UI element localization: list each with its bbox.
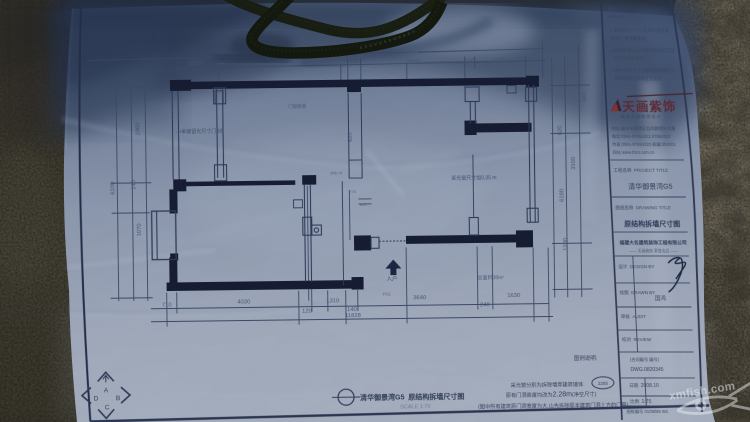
svg-text:—— 天画装饰 荣誉出品 ——: —— 天画装饰 荣誉出品 —— <box>629 248 678 253</box>
svg-text:1030: 1030 <box>688 41 701 47</box>
svg-text:120: 120 <box>302 309 312 315</box>
svg-text:6180: 6180 <box>559 189 565 202</box>
svg-text:工程名称 PROJECT TITLE: 工程名称 PROJECT TITLE <box>613 167 668 174</box>
svg-text:820: 820 <box>558 125 564 135</box>
svg-text:绘图 DRAWN BY: 绘图 DRAWN BY <box>619 289 655 296</box>
svg-text:2980: 2980 <box>135 122 141 135</box>
svg-text:4030: 4030 <box>237 299 250 305</box>
svg-text:710: 710 <box>162 302 172 308</box>
svg-text:2.拆墙前请与设计师现场核实无误: 2.拆墙前请与设计师现场核实无误 <box>610 47 675 54</box>
svg-text:P02: P02 <box>383 292 392 297</box>
svg-text:6100: 6100 <box>110 182 116 195</box>
svg-text:1280: 1280 <box>563 238 569 251</box>
svg-text:3.图中所示尺寸为结构完成面尺寸: 3.图中所示尺寸为结构完成面尺寸 <box>611 67 676 74</box>
svg-text:图纸名称 DRAWING TITLE: 图纸名称 DRAWING TITLE <box>615 204 671 211</box>
svg-text:(合同编号 编号): (合同编号 编号) <box>630 356 660 363</box>
svg-text:620: 620 <box>348 132 354 142</box>
svg-text:设计 DESIGN BY: 设计 DESIGN BY <box>618 263 654 270</box>
svg-text:3640: 3640 <box>413 295 426 301</box>
svg-text:880: 880 <box>582 92 588 102</box>
svg-text:1600: 1600 <box>492 58 505 64</box>
svg-text:DWG.0820345: DWG.0820345 <box>630 367 664 373</box>
svg-text:入户: 入户 <box>386 275 397 283</box>
svg-text:3100: 3100 <box>571 157 577 170</box>
svg-text:P.RN.426: P.RN.426 <box>608 14 627 19</box>
svg-text:240: 240 <box>480 302 490 308</box>
svg-text:网址:www.thzs.com.cn: 网址:www.thzs.com.cn <box>612 149 655 156</box>
svg-text:校对 REVIEW: 校对 REVIEW <box>622 336 652 343</box>
svg-text:C: C <box>105 404 110 411</box>
svg-text:1630: 1630 <box>507 293 520 299</box>
svg-text:原结构拆墙尺寸图: 原结构拆墙尺寸图 <box>624 219 680 228</box>
svg-text:天画紫饰: 天画紫饰 <box>622 99 677 114</box>
svg-text:825: 825 <box>360 202 368 207</box>
svg-text:福建大名建筑装饰工程有限公司: 福建大名建筑装饰工程有限公司 <box>618 239 687 246</box>
svg-text:国鸿: 国鸿 <box>655 294 667 302</box>
svg-text:D: D <box>94 395 99 402</box>
svg-text:11828: 11828 <box>345 313 361 319</box>
svg-text:地址:福州市鼓楼区五四路国际大厦: 地址:福州市鼓楼区五四路国际大厦 <box>611 125 675 132</box>
svg-text:775: 775 <box>349 189 357 194</box>
svg-text:B: B <box>116 395 120 402</box>
svg-text:SCALE 1:75: SCALE 1:75 <box>400 404 430 410</box>
svg-text:306.70: 306.70 <box>330 170 343 175</box>
svg-text:审核 AUDIT: 审核 AUDIT <box>621 313 647 320</box>
svg-text:福 州 天 画 装 饰 设 计: 福 州 天 画 装 饰 设 计 <box>621 113 661 119</box>
svg-text:2640: 2640 <box>406 59 419 65</box>
svg-text:清华御景湾G5: 清华御景湾G5 <box>628 182 673 191</box>
svg-text:备注: 备注 <box>607 5 617 12</box>
svg-text:电话:0591-87654321 87654322: 电话:0591-87654321 87654322 <box>612 133 672 140</box>
svg-text:采光窗尺寸加0.35 m: 采光窗尺寸加0.35 m <box>451 174 496 182</box>
svg-text:图纸编号 01/08/06 W1: 图纸编号 01/08/06 W1 <box>626 408 669 415</box>
svg-text:砌墙前请先弹线定位复核: 砌墙前请先弹线定位复核 <box>615 75 663 82</box>
svg-text:(现场门窗测量复核): (现场门窗测量复核) <box>610 35 648 42</box>
svg-text:1070: 1070 <box>137 223 143 236</box>
svg-text:A: A <box>104 387 109 394</box>
svg-text:总面积38m²: 总面积38m² <box>477 274 504 281</box>
svg-text:1.本图所注尺寸以现场实测为准: 1.本图所注尺寸以现场实测为准 <box>609 27 669 34</box>
svg-text:2285: 2285 <box>598 381 609 386</box>
svg-text:1870: 1870 <box>188 61 201 67</box>
svg-text:比例 1:75: 比例 1:75 <box>630 398 652 405</box>
svg-text:传真:0591-87654323 邮编:350001: 传真:0591-87654323 邮编:350001 <box>612 141 677 148</box>
svg-text:1310: 1310 <box>326 298 339 304</box>
svg-text:140: 140 <box>131 180 137 190</box>
svg-text:后方可进行施工: 后方可进行施工 <box>614 55 645 62</box>
svg-text:120: 120 <box>465 58 475 64</box>
svg-text:←•单玻留光尺寸门9扇: ←•单玻留光尺寸门9扇 <box>175 128 225 136</box>
